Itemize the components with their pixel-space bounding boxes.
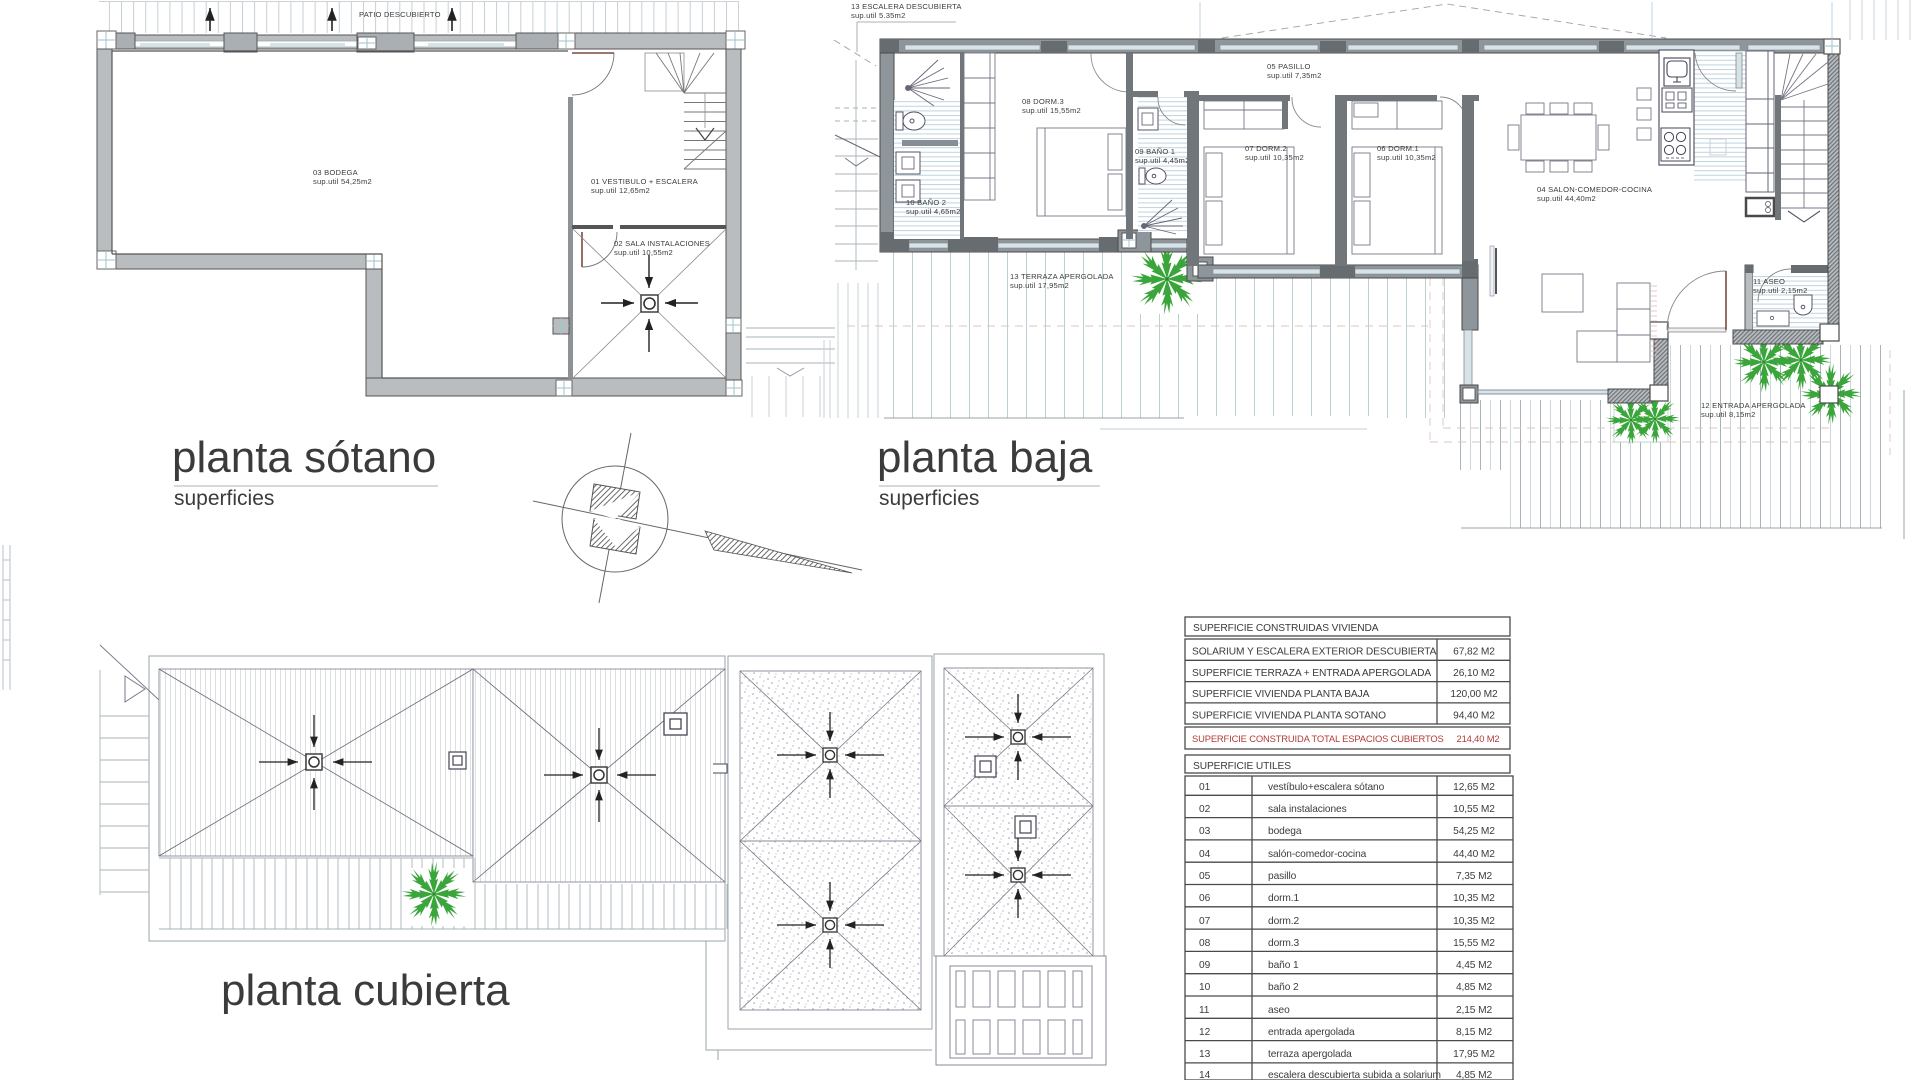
svg-text:sup.util 10,35m2: sup.util 10,35m2 — [1245, 153, 1304, 162]
svg-text:SUPERFICIE CONSTRUIDA TOTAL ES: SUPERFICIE CONSTRUIDA TOTAL ESPACIOS CUB… — [1192, 733, 1444, 744]
svg-text:SOLARIUM Y ESCALERA EXTERIOR D: SOLARIUM Y ESCALERA EXTERIOR DESCUBIERTA — [1192, 647, 1437, 658]
svg-text:sup.util 44,40m2: sup.util 44,40m2 — [1537, 194, 1596, 203]
svg-text:13 ESCALERA DESCUBIERTA: 13 ESCALERA DESCUBIERTA — [851, 2, 962, 11]
svg-text:terraza apergolada: terraza apergolada — [1268, 1049, 1352, 1060]
svg-text:03: 03 — [1199, 826, 1211, 837]
svg-text:sup.util 10,35m2: sup.util 10,35m2 — [1377, 153, 1436, 162]
svg-text:planta cubierta: planta cubierta — [221, 966, 510, 1015]
svg-text:PATIO DESCUBIERTO: PATIO DESCUBIERTO — [359, 10, 441, 19]
svg-text:01 VESTIBULO + ESCALERA: 01 VESTIBULO + ESCALERA — [591, 177, 699, 186]
svg-text:sala instalaciones: sala instalaciones — [1268, 804, 1347, 815]
svg-text:SUPERFICIE TERRAZA + ENTRADA A: SUPERFICIE TERRAZA + ENTRADA APERGOLADA — [1192, 668, 1431, 679]
svg-text:05: 05 — [1199, 871, 1211, 882]
svg-text:12 ENTRADA APERGOLADA: 12 ENTRADA APERGOLADA — [1701, 401, 1806, 410]
svg-text:54,25 M2: 54,25 M2 — [1453, 826, 1495, 837]
svg-text:SUPERFICIE UTILES: SUPERFICIE UTILES — [1193, 761, 1291, 772]
svg-text:SUPERFICIE CONSTRUIDAS VIVIEND: SUPERFICIE CONSTRUIDAS VIVIENDA — [1193, 623, 1379, 634]
svg-text:vestíbulo+escalera sótano: vestíbulo+escalera sótano — [1268, 782, 1385, 793]
svg-text:10,55 M2: 10,55 M2 — [1453, 804, 1495, 815]
svg-text:planta sótano: planta sótano — [172, 433, 436, 482]
svg-text:12,65 M2: 12,65 M2 — [1453, 782, 1495, 793]
svg-text:06: 06 — [1199, 893, 1211, 904]
svg-text:dorm.1: dorm.1 — [1268, 893, 1300, 904]
svg-text:2,15 M2: 2,15 M2 — [1456, 1005, 1493, 1016]
svg-text:08: 08 — [1199, 938, 1211, 949]
svg-text:sup.util 7,35m2: sup.util 7,35m2 — [1267, 71, 1322, 80]
svg-text:bodega: bodega — [1268, 826, 1302, 837]
svg-text:10,35 M2: 10,35 M2 — [1453, 916, 1495, 927]
svg-text:12: 12 — [1199, 1027, 1211, 1038]
svg-text:07 DORM.2: 07 DORM.2 — [1245, 144, 1287, 153]
svg-text:4,45 M2: 4,45 M2 — [1456, 960, 1493, 971]
svg-text:15,55 M2: 15,55 M2 — [1453, 938, 1495, 949]
svg-text:17,95 M2: 17,95 M2 — [1453, 1049, 1495, 1060]
svg-text:04 SALON-COMEDOR-COCINA: 04 SALON-COMEDOR-COCINA — [1537, 185, 1653, 194]
svg-text:04: 04 — [1199, 849, 1211, 860]
svg-text:sup.util 4,45m2: sup.util 4,45m2 — [1135, 156, 1190, 165]
svg-text:44,40 M2: 44,40 M2 — [1453, 849, 1495, 860]
svg-text:214,40 M2: 214,40 M2 — [1457, 733, 1500, 744]
svg-text:26,10 M2: 26,10 M2 — [1453, 668, 1495, 679]
svg-text:08 DORM.3: 08 DORM.3 — [1022, 97, 1064, 106]
svg-text:sup.util 15,55m2: sup.util 15,55m2 — [1022, 106, 1081, 115]
svg-text:10,35 M2: 10,35 M2 — [1453, 893, 1495, 904]
svg-text:sup.util 5.35m2: sup.util 5.35m2 — [851, 11, 906, 20]
svg-text:planta baja: planta baja — [877, 433, 1093, 482]
svg-text:13: 13 — [1199, 1049, 1211, 1060]
svg-text:11 ASEO: 11 ASEO — [1753, 277, 1785, 286]
svg-text:10: 10 — [1199, 982, 1211, 993]
svg-text:01: 01 — [1199, 782, 1211, 793]
svg-text:sup.util 10,55m2: sup.util 10,55m2 — [614, 248, 673, 257]
svg-text:07: 07 — [1199, 916, 1211, 927]
svg-text:09: 09 — [1199, 960, 1211, 971]
svg-text:02 SALA INSTALACIONES: 02 SALA INSTALACIONES — [614, 239, 710, 248]
svg-text:sup.util 4,65m2: sup.util 4,65m2 — [906, 207, 961, 216]
svg-text:11: 11 — [1199, 1005, 1210, 1016]
svg-text:pasillo: pasillo — [1268, 871, 1297, 882]
svg-text:escalera descubierta subida a: escalera descubierta subida a solarium — [1268, 1070, 1441, 1080]
svg-text:4,85 M2: 4,85 M2 — [1456, 1070, 1493, 1080]
svg-text:10 BAÑO 2: 10 BAÑO 2 — [906, 198, 946, 207]
svg-text:SUPERFICIE VIVIENDA PLANTA SOT: SUPERFICIE VIVIENDA PLANTA SOTANO — [1192, 710, 1386, 721]
svg-text:SUPERFICIE VIVIENDA PLANTA BAJ: SUPERFICIE VIVIENDA PLANTA BAJA — [1192, 689, 1370, 700]
svg-text:baño 2: baño 2 — [1268, 982, 1299, 993]
svg-text:superficies: superficies — [174, 487, 274, 510]
svg-text:05 PASILLO: 05 PASILLO — [1267, 62, 1311, 71]
svg-text:aseo: aseo — [1268, 1005, 1290, 1016]
svg-text:14: 14 — [1199, 1070, 1211, 1080]
svg-text:67,82 M2: 67,82 M2 — [1453, 647, 1495, 658]
svg-text:sup.util 54,25m2: sup.util 54,25m2 — [313, 177, 372, 186]
svg-text:06 DORM.1: 06 DORM.1 — [1377, 144, 1419, 153]
svg-text:sup.util 8,15m2: sup.util 8,15m2 — [1701, 410, 1756, 419]
svg-text:120,00 M2: 120,00 M2 — [1450, 689, 1498, 700]
svg-text:baño 1: baño 1 — [1268, 960, 1299, 971]
svg-text:sup.util 17,95m2: sup.util 17,95m2 — [1010, 281, 1069, 290]
svg-text:09 BAÑO 1: 09 BAÑO 1 — [1135, 147, 1175, 156]
svg-text:sup.util 2,15m2: sup.util 2,15m2 — [1753, 286, 1808, 295]
svg-text:sup.util 12,65m2: sup.util 12,65m2 — [591, 186, 650, 195]
svg-text:03 BODEGA: 03 BODEGA — [313, 168, 359, 177]
svg-text:entrada apergolada: entrada apergolada — [1268, 1027, 1355, 1038]
svg-text:8,15 M2: 8,15 M2 — [1456, 1027, 1493, 1038]
svg-text:dorm.3: dorm.3 — [1268, 938, 1300, 949]
svg-text:02: 02 — [1199, 804, 1211, 815]
svg-text:13 TERRAZA APERGOLADA: 13 TERRAZA APERGOLADA — [1010, 272, 1114, 281]
svg-text:dorm.2: dorm.2 — [1268, 916, 1300, 927]
svg-text:salón-comedor-cocina: salón-comedor-cocina — [1268, 849, 1367, 860]
svg-text:superficies: superficies — [879, 487, 979, 510]
svg-text:94,40 M2: 94,40 M2 — [1453, 710, 1495, 721]
svg-text:4,85 M2: 4,85 M2 — [1456, 982, 1493, 993]
svg-text:7,35 M2: 7,35 M2 — [1456, 871, 1493, 882]
